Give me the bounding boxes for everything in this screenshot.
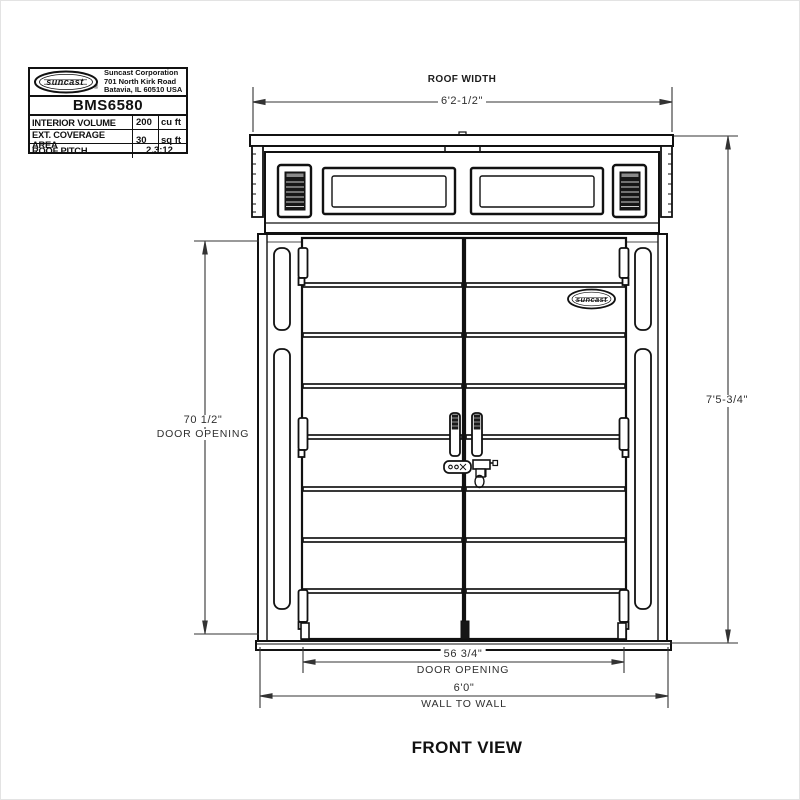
spec-row-roof-pitch: ROOF PITCH 2.3:12 — [30, 144, 186, 157]
spec-unit: cu ft — [158, 116, 186, 129]
door-width-label: DOOR OPENING — [414, 665, 512, 676]
dim-overall-height — [670, 136, 738, 643]
overall-height-value: 7'5-3/4" — [703, 395, 751, 407]
left-vent-icon — [278, 165, 311, 217]
address-line: Batavia, IL 60510 USA — [104, 86, 182, 94]
model-number: BMS6580 — [30, 97, 186, 116]
roof-width-value: 6'2-1/2" — [438, 96, 486, 108]
wall-to-wall-value: 6'0" — [451, 683, 478, 695]
wall-to-wall-label: WALL TO WALL — [418, 699, 510, 710]
badge-logo-text: suncast — [576, 295, 607, 304]
logo-text: suncast — [46, 77, 84, 87]
dim-roof-width — [253, 87, 672, 132]
view-title: FRONT VIEW — [412, 739, 523, 757]
spec-label: ROOF PITCH — [30, 146, 132, 156]
title-block-header: suncast ® Suncast Corporation 701 North … — [30, 69, 186, 97]
spec-row-coverage-area: EXT. COVERAGE AREA 30 sq ft — [30, 130, 186, 144]
brand-badge: suncast — [568, 290, 615, 309]
left-door — [302, 238, 463, 639]
title-block: suncast ® Suncast Corporation 701 North … — [28, 67, 188, 154]
roof — [250, 132, 673, 153]
spec-label: INTERIOR VOLUME — [30, 118, 132, 128]
suncast-logo-icon: suncast ® — [30, 69, 104, 95]
header-panel — [265, 152, 659, 233]
spec-value: 2.3:12 — [132, 144, 186, 157]
left-window — [323, 168, 455, 214]
company-address: Suncast Corporation 701 North Kirk Road … — [104, 69, 182, 94]
door-height-value: 70 1/2" — [181, 415, 226, 427]
drawing-sheet: suncast — [0, 0, 800, 800]
door-height-label: DOOR OPENING — [154, 429, 252, 440]
spec-row-interior-volume: INTERIOR VOLUME 200 cu ft — [30, 116, 186, 130]
logo-reg-mark: ® — [94, 84, 99, 91]
spec-value: 200 — [132, 116, 158, 129]
right-window — [471, 168, 603, 214]
right-vent-icon — [613, 165, 646, 217]
door-width-value: 56 3/4" — [441, 649, 486, 661]
roof-width-label: ROOF WIDTH — [428, 75, 496, 86]
